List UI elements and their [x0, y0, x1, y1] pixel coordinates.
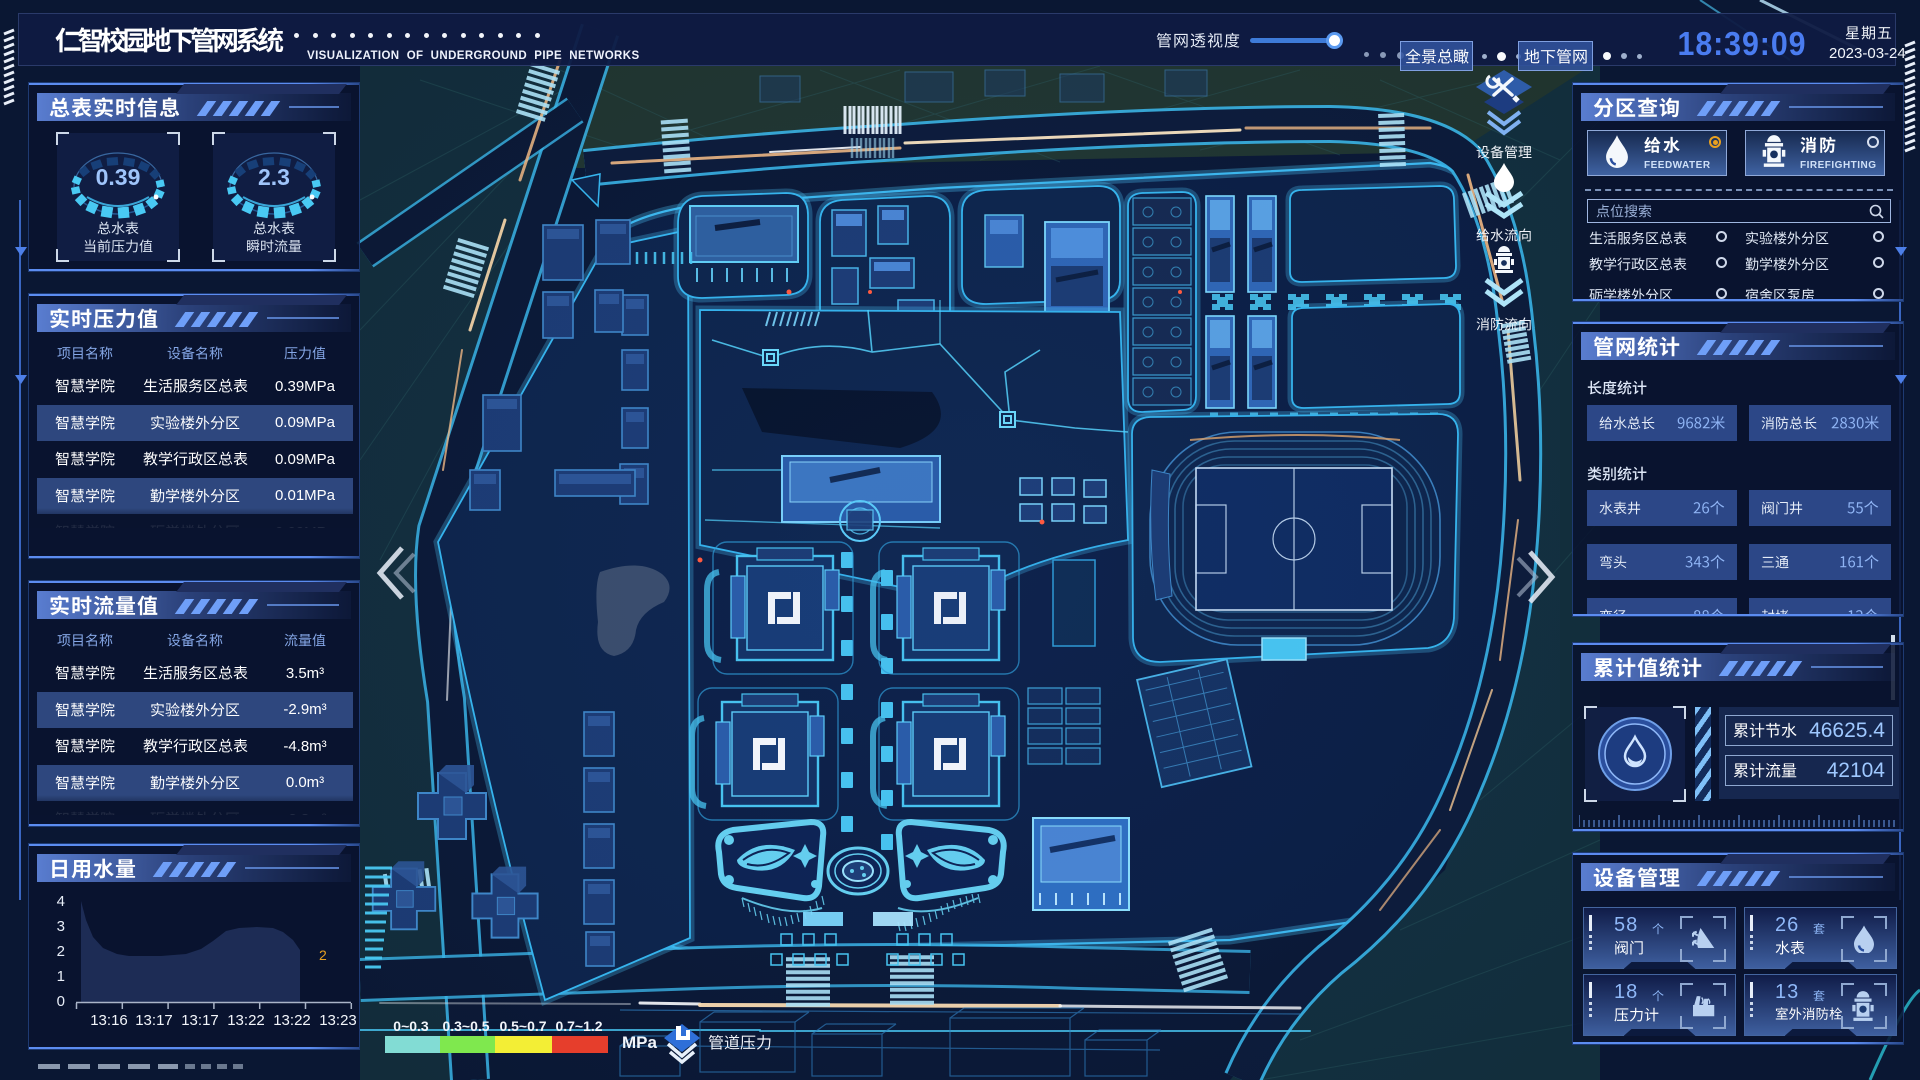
svg-text:2: 2	[319, 947, 327, 963]
svg-text:4: 4	[57, 893, 65, 910]
svg-text:3: 3	[57, 918, 65, 935]
svg-text:0: 0	[57, 993, 65, 1010]
svg-text:2: 2	[57, 943, 65, 960]
svg-text:13:17: 13:17	[135, 1012, 173, 1029]
svg-text:13:23: 13:23	[319, 1012, 357, 1029]
svg-text:13:22: 13:22	[273, 1012, 311, 1029]
svg-text:2.3: 2.3	[258, 164, 290, 190]
svg-text:13:17: 13:17	[181, 1012, 219, 1029]
svg-text:13:16: 13:16	[90, 1012, 128, 1029]
svg-text:0.39: 0.39	[96, 164, 141, 190]
svg-text:1: 1	[57, 968, 65, 985]
svg-text:13:22: 13:22	[227, 1012, 265, 1029]
